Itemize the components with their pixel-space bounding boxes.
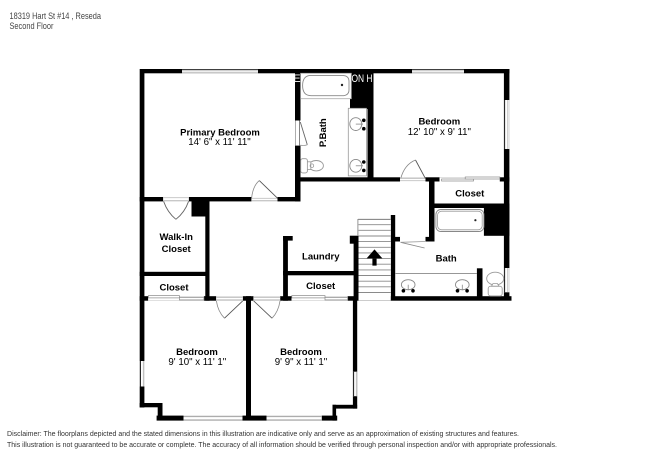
svg-text:Second Floor: Second Floor (10, 21, 54, 31)
svg-text:ON H: ON H (352, 73, 373, 85)
svg-text:Bath: Bath (436, 253, 457, 264)
svg-text:14' 6" x 11' 11": 14' 6" x 11' 11" (188, 137, 251, 148)
svg-text:Laundry: Laundry (302, 251, 340, 262)
svg-text:Walk-In: Walk-In (159, 232, 193, 243)
svg-text:9' 10" x 11' 1": 9' 10" x 11' 1" (168, 357, 226, 368)
svg-text:9' 9" x 11' 1": 9' 9" x 11' 1" (275, 357, 328, 368)
svg-text:12' 10" x 9' 11": 12' 10" x 9' 11" (408, 127, 472, 138)
svg-text:Closet: Closet (306, 281, 336, 292)
svg-text:This illustration is not guara: This illustration is not guaranteed to b… (7, 442, 557, 449)
svg-text:Closet: Closet (455, 188, 485, 199)
svg-text:P.Bath: P.Bath (318, 118, 329, 147)
svg-text:E: E (293, 73, 300, 85)
svg-text:18319 Hart St #14 , Reseda: 18319 Hart St #14 , Reseda (10, 11, 102, 21)
svg-text:Bedroom: Bedroom (418, 116, 460, 127)
svg-text:Disclaimer: The floorplans dep: Disclaimer: The floorplans depicted and … (7, 431, 519, 438)
svg-text:Closet: Closet (159, 283, 189, 294)
svg-text:Closet: Closet (162, 244, 192, 255)
